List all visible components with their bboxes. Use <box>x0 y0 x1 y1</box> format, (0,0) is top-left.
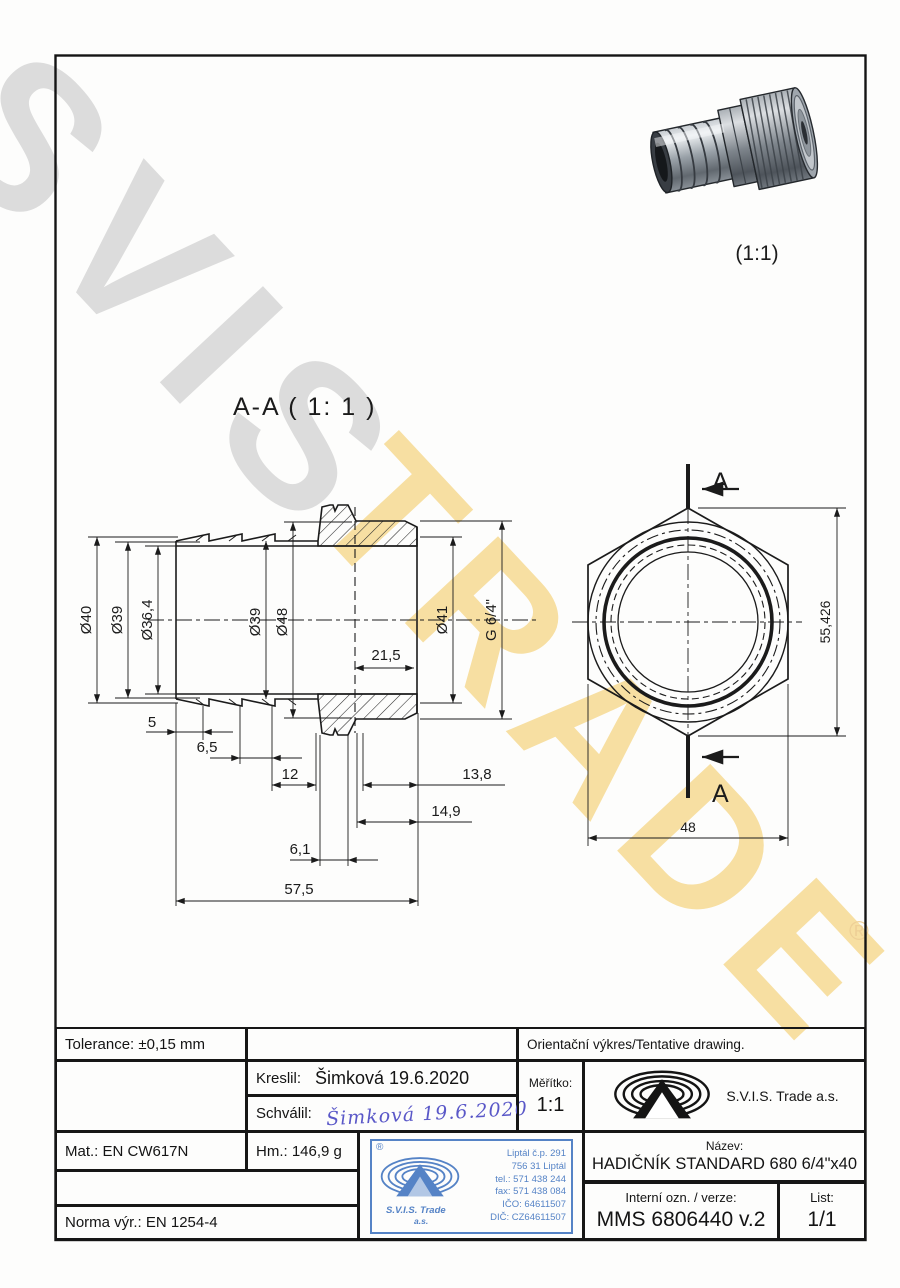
meritko-value: 1:1 <box>537 1094 565 1117</box>
empty-cell-top <box>246 1027 518 1061</box>
list-value: 1/1 <box>807 1208 836 1232</box>
section-title: A-A ( 1: 1 ) <box>233 393 376 421</box>
material-cell: Mat.: EN CW617N <box>55 1131 247 1171</box>
stamp-address-line: fax: 571 438 084 <box>490 1186 566 1199</box>
dim-55-426: 55,426 <box>817 600 833 643</box>
stamp-company-line1: S.V.I.S. Trade <box>386 1205 446 1216</box>
norma-text: Norma výr.: EN 1254-4 <box>65 1214 218 1231</box>
list-cell: List: 1/1 <box>778 1182 866 1240</box>
weight-text: Hm.: 146,9 g <box>256 1143 342 1160</box>
orientacni-text: Orientační výkres/Tentative drawing. <box>527 1037 745 1052</box>
company-name: S.V.I.S. Trade a.s. <box>726 1088 838 1104</box>
material-text: Mat.: EN CW617N <box>65 1143 188 1160</box>
schvalil-cell: Schválil: Šimková 19.6.2020 <box>246 1095 518 1132</box>
schvalil-label: Schválil: <box>256 1105 312 1122</box>
interni-label: Interní ozn. / verze: <box>625 1190 736 1205</box>
section-arrow-label-top: A <box>712 468 729 496</box>
dim-d48: Ø48 <box>274 608 291 636</box>
hex-view <box>572 464 846 846</box>
company-cell: S.V.I.S. Trade a.s. <box>583 1060 866 1132</box>
stamp-address-line: DIČ: CZ64611507 <box>490 1212 566 1225</box>
dim-21-5: 21,5 <box>371 647 400 664</box>
stamp-address-line: 756 31 Liptál <box>490 1161 566 1174</box>
stamp-address: Liptál č.p. 291 756 31 Liptál tel.: 571 … <box>490 1148 566 1225</box>
dim-d40: Ø40 <box>78 606 95 634</box>
dim-48: 48 <box>680 819 696 835</box>
dim-d39-left: Ø39 <box>109 606 126 634</box>
photo-scale-caption: (1:1) <box>722 242 792 266</box>
stamp-logo-icon <box>376 1155 464 1201</box>
stamp-cell: ® S.V.I.S. Trade a.s. Liptál č.p. 291 75… <box>358 1131 584 1240</box>
stamp-registered-icon: ® <box>376 1142 383 1153</box>
dim-57-5: 57,5 <box>284 881 313 898</box>
dim-14-9: 14,9 <box>431 803 460 820</box>
meritko-cell: Měřítko: 1:1 <box>517 1060 584 1132</box>
nazev-cell: Název: HADIČNÍK STANDARD 680 6/4"x40 <box>583 1131 866 1182</box>
dim-d39-mid: Ø39 <box>247 608 264 636</box>
product-photo <box>644 86 823 210</box>
stamp-address-line: IČO: 64611507 <box>490 1199 566 1212</box>
stamp-address-line: tel.: 571 438 244 <box>490 1174 566 1187</box>
schvalil-signature: Šimková 19.6.2020 <box>325 1097 528 1130</box>
section-arrow-label-bottom: A <box>712 780 729 808</box>
orientacni-cell: Orientační výkres/Tentative drawing. <box>517 1027 866 1061</box>
dim-5: 5 <box>148 714 156 731</box>
drawing-sheet: SVIS TRADE ® <box>0 0 900 1288</box>
section-view <box>148 505 540 735</box>
dim-d36-4: Ø36,4 <box>139 600 156 641</box>
nazev-value: HADIČNÍK STANDARD 680 6/4"x40 <box>592 1155 857 1174</box>
empty-cell-left <box>55 1060 247 1132</box>
tolerance-text: Tolerance: ±0,15 mm <box>65 1036 205 1053</box>
norma-cell: Norma výr.: EN 1254-4 <box>55 1205 359 1240</box>
interni-cell: Interní ozn. / verze: MMS 6806440 v.2 <box>583 1182 779 1240</box>
dim-6-5: 6,5 <box>197 739 218 756</box>
empty-cell-mid <box>55 1170 359 1206</box>
interni-value: MMS 6806440 v.2 <box>597 1208 766 1232</box>
company-stamp: ® S.V.I.S. Trade a.s. Liptál č.p. 291 75… <box>370 1139 573 1234</box>
dim-12: 12 <box>282 766 299 783</box>
kreslil-value: Šimková 19.6.2020 <box>315 1068 469 1089</box>
meritko-label: Měřítko: <box>529 1076 572 1090</box>
weight-cell: Hm.: 146,9 g <box>246 1131 359 1171</box>
nazev-label: Název: <box>706 1139 743 1153</box>
stamp-address-line: Liptál č.p. 291 <box>490 1148 566 1161</box>
list-label: List: <box>810 1190 834 1205</box>
stamp-company-line2: a.s. <box>414 1216 428 1226</box>
kreslil-cell: Kreslil: Šimková 19.6.2020 <box>246 1060 518 1096</box>
dim-g64: G 6/4" <box>483 599 500 641</box>
kreslil-label: Kreslil: <box>256 1070 301 1087</box>
dim-6-1: 6,1 <box>290 841 311 858</box>
dim-d41: Ø41 <box>434 606 451 634</box>
tolerance-cell: Tolerance: ±0,15 mm <box>55 1027 247 1061</box>
dim-13-8: 13,8 <box>462 766 491 783</box>
svis-logo-icon <box>610 1068 714 1124</box>
